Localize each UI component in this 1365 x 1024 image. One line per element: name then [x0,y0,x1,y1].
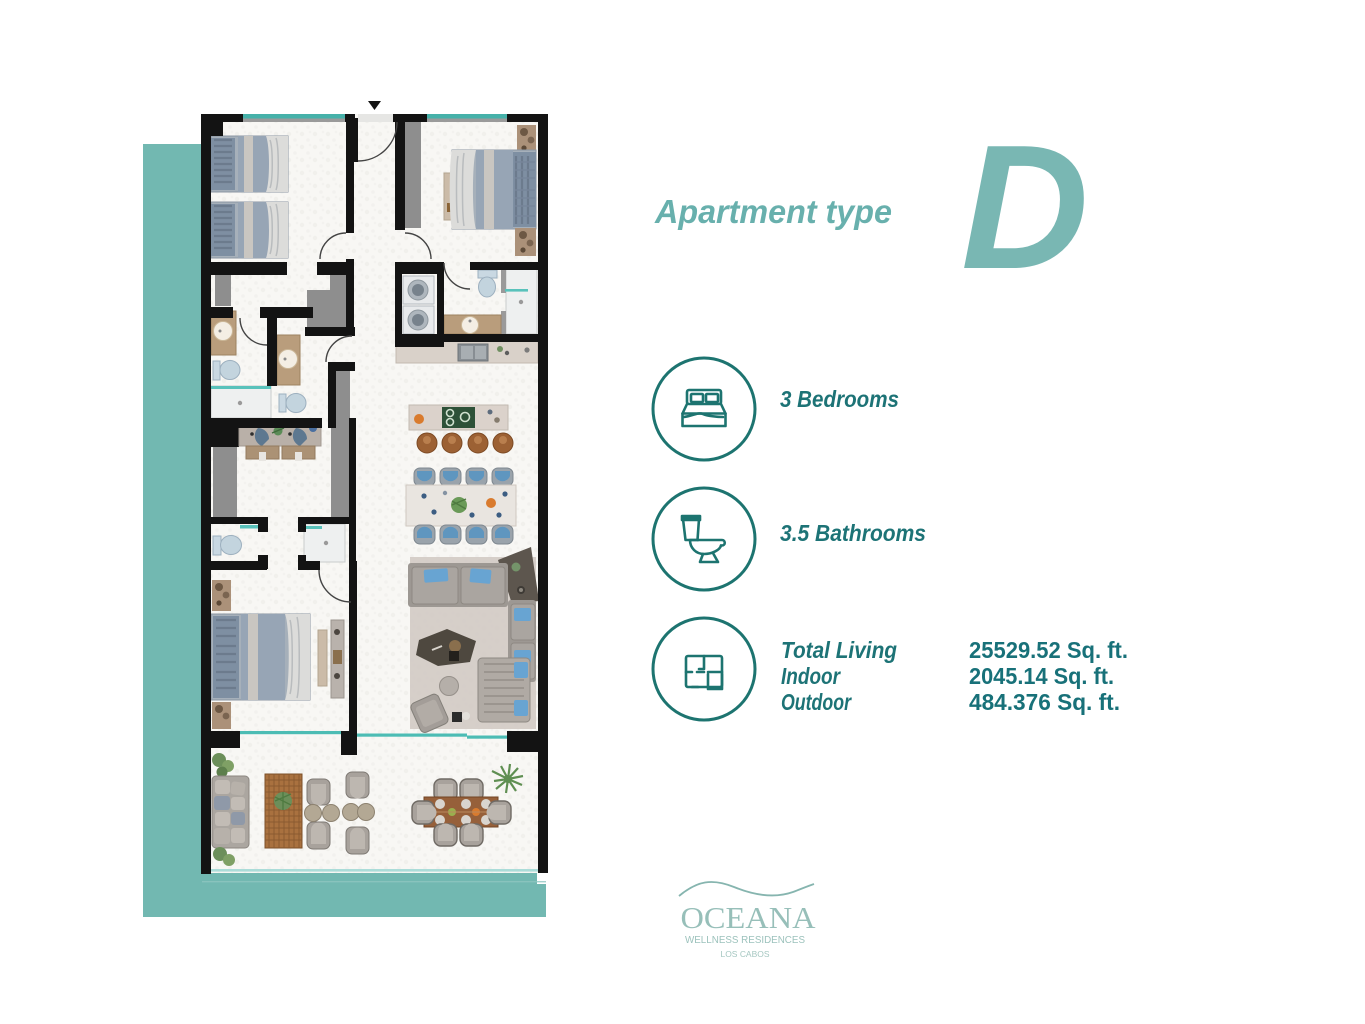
svg-text:D: D [961,108,1089,306]
svg-text:LOS CABOS: LOS CABOS [721,949,770,959]
svg-text:OCEANA: OCEANA [681,900,817,935]
svg-text:3.5 Bathrooms: 3.5 Bathrooms [780,520,926,546]
svg-text:2045.14 Sq. ft.: 2045.14 Sq. ft. [969,663,1114,689]
svg-text:Outdoor: Outdoor [781,689,852,715]
svg-text:25529.52 Sq. ft.: 25529.52 Sq. ft. [969,637,1128,663]
svg-text:Indoor: Indoor [781,663,841,689]
svg-text:WELLNESS RESIDENCES: WELLNESS RESIDENCES [685,935,805,946]
svg-text:Apartment type: Apartment type [654,193,892,230]
svg-text:484.376 Sq. ft.: 484.376 Sq. ft. [969,689,1120,715]
svg-text:3 Bedrooms: 3 Bedrooms [780,386,899,412]
svg-text:Total Living: Total Living [781,637,897,663]
